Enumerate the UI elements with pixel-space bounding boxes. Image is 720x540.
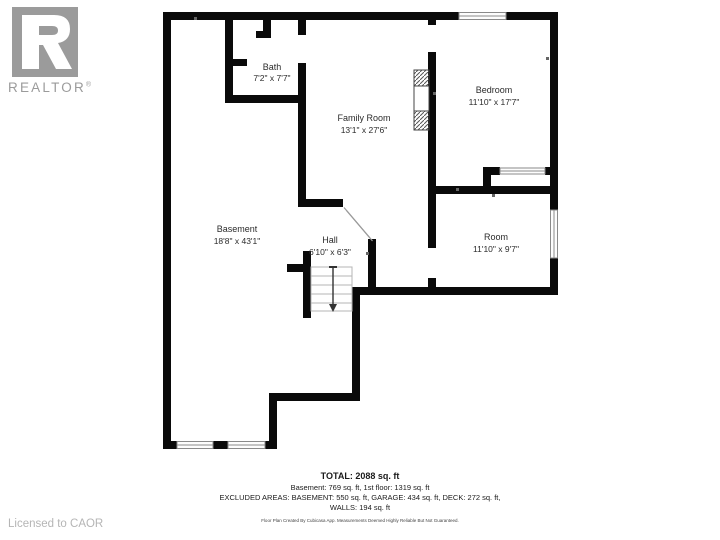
staircase-icon xyxy=(311,267,352,312)
room-label-basement: Basement 18'8" x 43'1" xyxy=(214,224,261,246)
summary-walls: WALLS: 194 sq. ft xyxy=(0,503,720,513)
summary-floors: Basement: 769 sq. ft, 1st floor: 1319 sq… xyxy=(0,483,720,493)
room-name: Bath xyxy=(263,62,282,72)
room-dims: 11'10" x 9'7" xyxy=(473,244,519,254)
floor-plan-page: REALTOR® xyxy=(0,0,720,540)
room-name: Room xyxy=(484,232,508,242)
fireplace-icon xyxy=(414,70,429,130)
room-dims: 11'10" x 17'7" xyxy=(469,97,520,107)
room-dims: 6'10" x 6'3" xyxy=(309,247,351,257)
window-bottom-left-2 xyxy=(228,442,265,449)
room-dims: 18'8" x 43'1" xyxy=(214,236,261,246)
room-label-bath: Bath 7'2" x 7'7" xyxy=(253,62,290,83)
room-name: Basement xyxy=(217,224,258,234)
license-text: Licensed to CAOR xyxy=(8,518,103,530)
room-name: Bedroom xyxy=(476,85,513,95)
room-label-family-room: Family Room 13'1" x 27'6" xyxy=(337,113,390,135)
room-name: Hall xyxy=(322,235,338,245)
window-top xyxy=(459,13,506,20)
room-dims: 13'1" x 27'6" xyxy=(341,125,388,135)
window-bottom-left-1 xyxy=(177,442,213,449)
summary-excluded: EXCLUDED AREAS: BASEMENT: 550 sq. ft, GA… xyxy=(0,493,720,503)
closet-door xyxy=(500,168,545,174)
room-label-hall: Hall 6'10" x 6'3" xyxy=(309,235,351,257)
floor-plan-drawing: Bath 7'2" x 7'7" Family Room 13'1" x 27'… xyxy=(0,0,720,540)
room-dims: 7'2" x 7'7" xyxy=(253,73,290,83)
summary-block: TOTAL: 2088 sq. ft Basement: 769 sq. ft,… xyxy=(0,470,720,524)
window-right xyxy=(551,210,558,258)
room-labels: Bath 7'2" x 7'7" Family Room 13'1" x 27'… xyxy=(214,62,520,257)
door-swing-icon xyxy=(344,208,373,242)
room-label-room: Room 11'10" x 9'7" xyxy=(473,232,519,254)
summary-total: TOTAL: 2088 sq. ft xyxy=(0,470,720,483)
room-name: Family Room xyxy=(337,113,390,123)
room-label-bedroom: Bedroom 11'10" x 17'7" xyxy=(469,85,520,107)
summary-disclaimer: Floor Plan Created By Cubicasa App. Meas… xyxy=(0,518,720,524)
